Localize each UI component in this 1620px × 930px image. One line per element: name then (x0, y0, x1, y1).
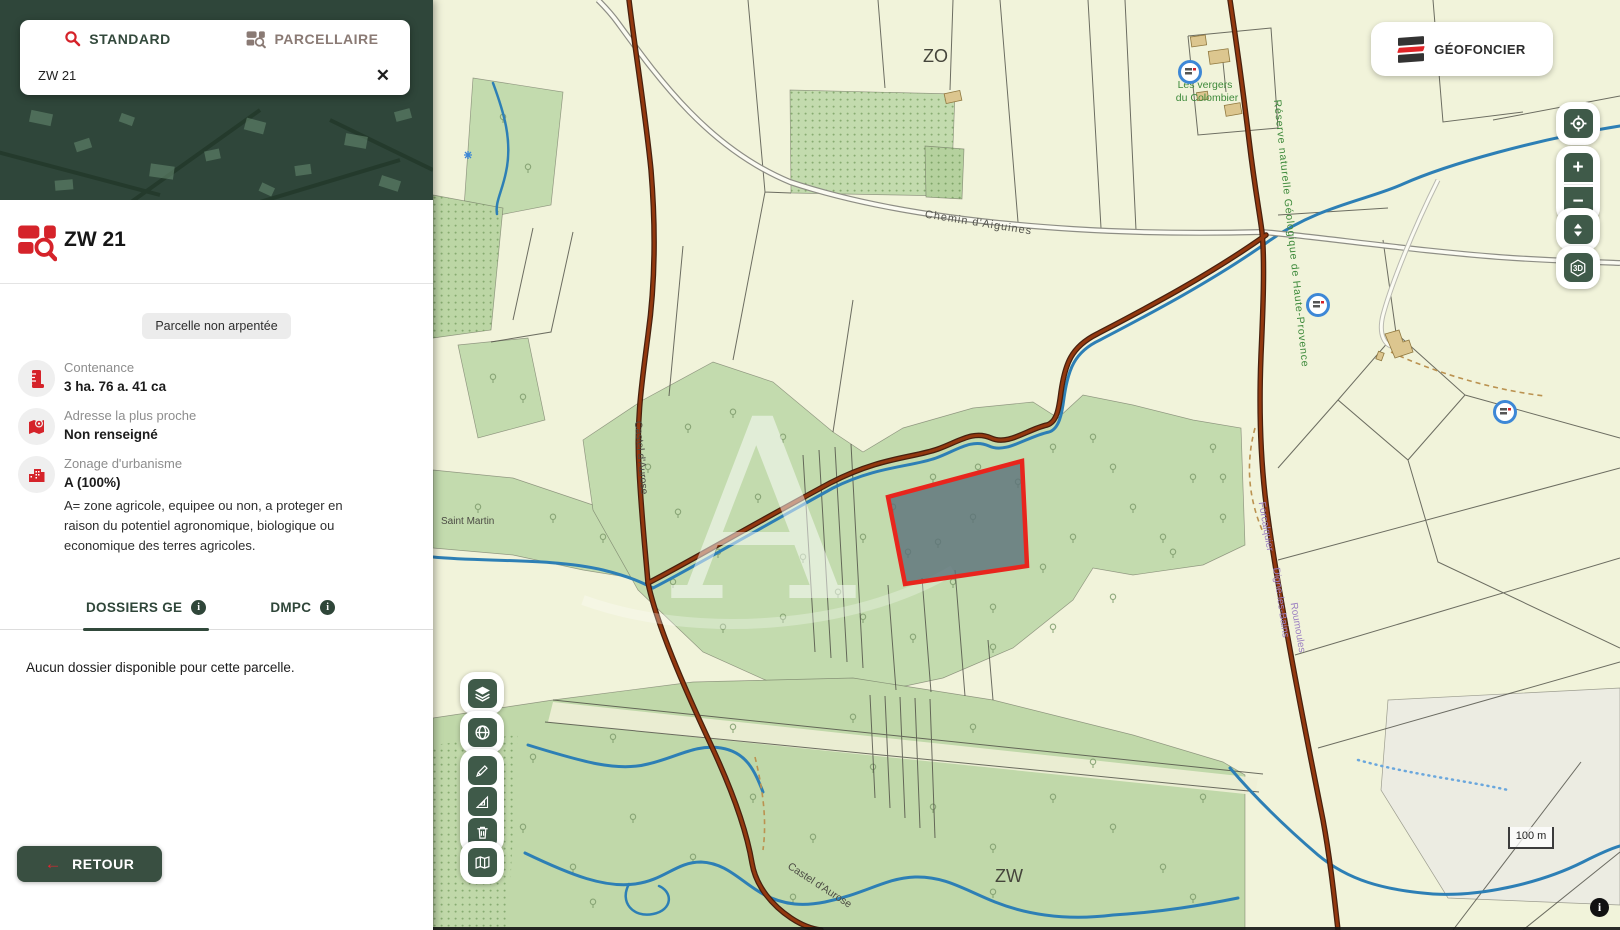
basemap-globe-control (460, 711, 504, 754)
map-label-place-2: du Colombier (1176, 92, 1239, 104)
scale-bar: 100 m (1508, 827, 1554, 849)
scale-label: 100 m (1516, 830, 1547, 842)
field-zonage: Zonage d'urbanisme A (100%) A= zone agri… (18, 456, 408, 555)
globe-icon (474, 724, 491, 741)
map-label-zone-top: ZO (923, 46, 948, 66)
water-marker (464, 151, 472, 159)
view-3d-icon: 3D (1569, 259, 1587, 277)
draw-tools-control (460, 749, 504, 854)
measure-button[interactable] (468, 787, 497, 816)
map-canvas: A ZO ZW Chemin d'Aiguines Castel d'Auros… (433, 0, 1620, 930)
field-adresse: Adresse la plus proche Non renseigné (18, 408, 408, 442)
view-3d-control: 3D (1556, 246, 1600, 289)
status-badge: Parcelle non arpentée (142, 313, 290, 339)
empty-message: Aucun dossier disponible pour cette parc… (26, 660, 295, 675)
svg-text:3D: 3D (1573, 264, 1583, 273)
tab-dossiers-ge[interactable]: DOSSIERS GE i (86, 585, 206, 629)
layers-button[interactable] (468, 679, 497, 708)
watermark-letter: A (671, 366, 856, 657)
search-input-row: ✕ (20, 57, 410, 93)
ruler-icon (18, 360, 55, 397)
map-label-hamlet: Saint Martin (441, 516, 494, 527)
field-value: A (100%) (64, 475, 408, 490)
field-value: Non renseigné (64, 427, 408, 442)
elevation-control (1556, 208, 1600, 251)
field-label: Contenance (64, 360, 408, 375)
geofoncier-logo-icon (1398, 36, 1424, 63)
dossier-tabs: DOSSIERS GE i DMPC i (0, 585, 433, 630)
parcel-title-row: ZW 21 (0, 200, 433, 284)
search-tabs: STANDARD PARCELLAIRE (20, 20, 410, 57)
layers-icon (474, 685, 491, 702)
search-tab-standard[interactable]: STANDARD (20, 30, 215, 47)
field-label: Adresse la plus proche (64, 408, 408, 423)
map[interactable]: A ZO ZW Chemin d'Aiguines Castel d'Auros… (433, 0, 1620, 930)
field-label: Zonage d'urbanisme (64, 456, 408, 471)
parcel-search-icon (246, 29, 266, 49)
sidebar: STANDARD PARCELLAIRE ✕ (0, 0, 433, 930)
geofoncier-app: A ZO ZW Chemin d'Aiguines Castel d'Auros… (0, 0, 1620, 930)
search-tab-standard-label: STANDARD (89, 31, 171, 47)
tilt-button[interactable] (1564, 215, 1593, 244)
search-tab-parcellaire[interactable]: PARCELLAIRE (215, 29, 410, 49)
set-square-icon (474, 794, 490, 810)
folded-map-icon (474, 854, 491, 871)
map-label-zone-bottom: ZW (995, 866, 1023, 886)
back-button[interactable]: ← RETOUR (17, 846, 162, 882)
search-tab-parcellaire-label: PARCELLAIRE (274, 31, 378, 47)
tab-dossiers-ge-label: DOSSIERS GE (86, 600, 182, 615)
sidebar-minimap-header: STANDARD PARCELLAIRE ✕ (0, 0, 433, 200)
zoom-in-icon: + (1572, 158, 1583, 177)
close-icon[interactable]: ✕ (372, 65, 394, 86)
search-icon (64, 30, 81, 47)
tab-dmpc[interactable]: DMPC i (270, 585, 335, 629)
parcel-result-icon (17, 222, 57, 262)
field-description: A= zone agricole, equipee ou non, a prot… (64, 496, 357, 555)
locate-icon (1570, 115, 1587, 132)
up-down-arrows-icon (1570, 222, 1586, 238)
info-icon: i (1598, 900, 1601, 915)
locate-button[interactable] (1564, 109, 1593, 138)
basemap-button[interactable] (468, 848, 497, 877)
zoom-divider (1564, 184, 1593, 185)
locate-control (1556, 102, 1600, 145)
back-button-label: RETOUR (72, 856, 134, 872)
field-contenance: Contenance 3 ha. 76 a. 41 ca (18, 360, 408, 394)
info-icon[interactable]: i (191, 600, 206, 615)
brand-card[interactable]: GÉOFONCIER (1371, 22, 1553, 76)
pencil-icon (474, 763, 490, 779)
zoom-in-button[interactable]: + (1564, 153, 1593, 182)
draw-button[interactable] (468, 756, 497, 785)
trash-icon (475, 825, 490, 840)
search-card: STANDARD PARCELLAIRE ✕ (20, 20, 410, 95)
field-value: 3 ha. 76 a. 41 ca (64, 379, 408, 394)
globe-button[interactable] (468, 718, 497, 747)
parcel-title: ZW 21 (64, 228, 126, 252)
search-input[interactable] (38, 68, 372, 83)
info-icon[interactable]: i (320, 600, 335, 615)
back-arrow-icon: ← (44, 854, 62, 874)
info-button[interactable]: i (1590, 898, 1609, 917)
address-icon (18, 408, 55, 445)
view-3d-button[interactable]: 3D (1564, 253, 1593, 282)
urbanism-icon (18, 456, 55, 493)
layers-control (460, 672, 504, 715)
brand-name: GÉOFONCIER (1434, 42, 1525, 57)
basemap-control (460, 841, 504, 884)
tab-dmpc-label: DMPC (270, 600, 311, 615)
